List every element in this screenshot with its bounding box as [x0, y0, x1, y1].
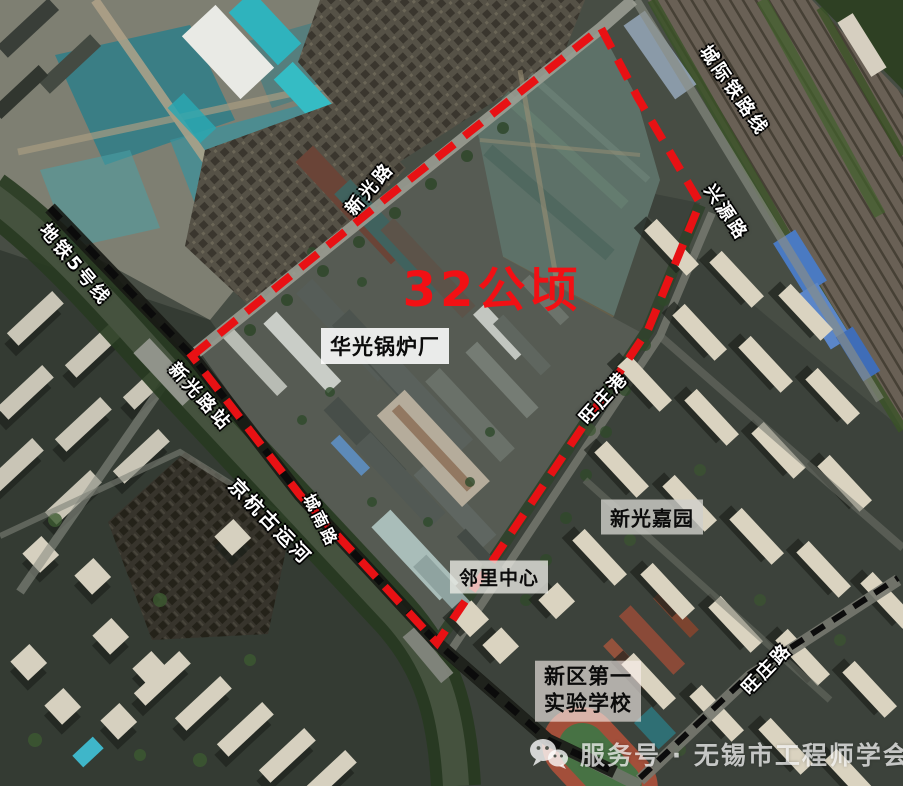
label-experimental-school: 新区第一 实验学校: [535, 661, 641, 722]
satellite-map: 地铁5号线 新光路站 新光路 城际铁路线 兴源路 京杭古运河 城南路 旺庄港 旺…: [0, 0, 903, 786]
label-school-line2: 实验学校: [544, 691, 632, 718]
watermark-text: 服务号 · 无锡市工程师学会: [580, 736, 903, 772]
label-neighborhood-center: 邻里中心: [450, 561, 548, 594]
wechat-icon: [528, 737, 570, 771]
label-xinguang-jiayuan: 新光嘉园: [601, 500, 703, 535]
label-huaguang-boiler-factory: 华光锅炉厂: [321, 328, 449, 364]
label-school-line1: 新区第一: [544, 664, 632, 691]
watermark: 服务号 · 无锡市工程师学会: [528, 736, 903, 772]
site-area-label: 32公顷: [403, 250, 582, 320]
